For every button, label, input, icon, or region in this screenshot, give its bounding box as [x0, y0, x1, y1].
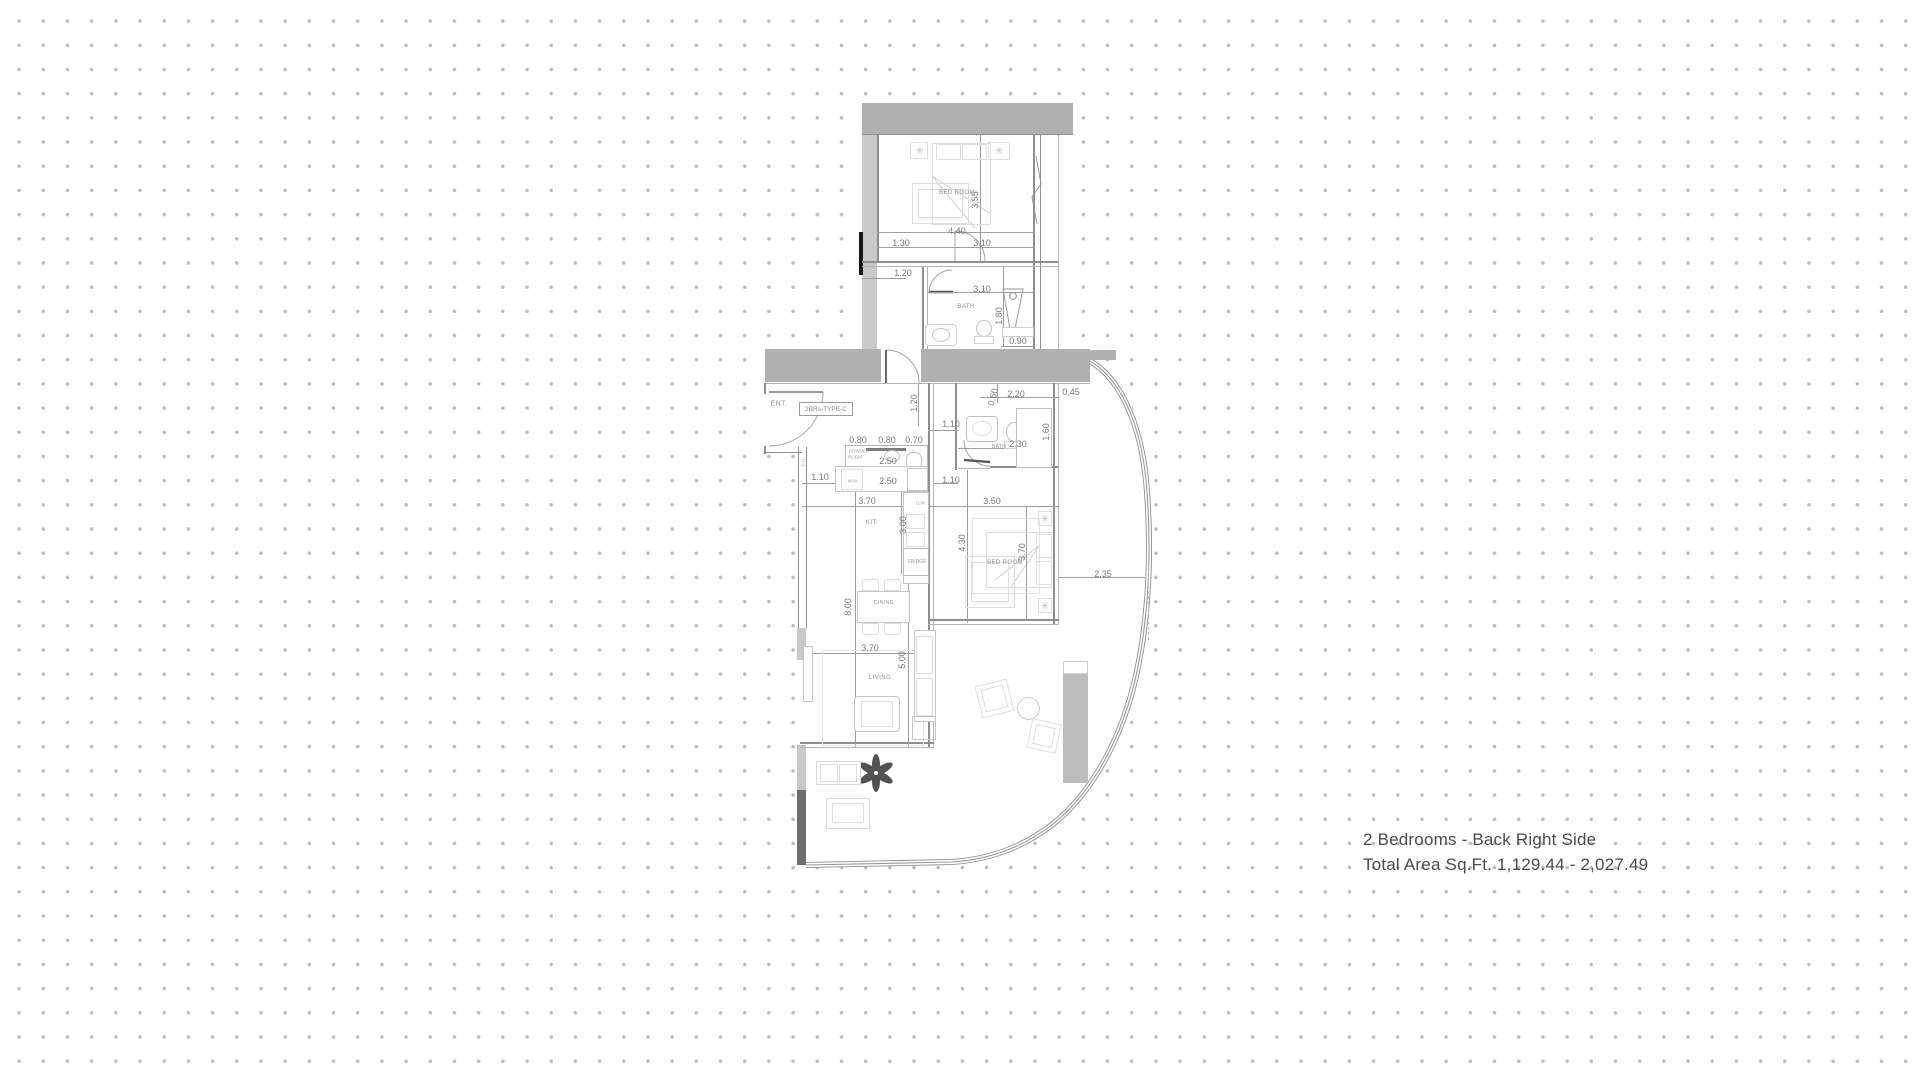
wall-line: [922, 267, 924, 349]
dimension-label: 2.20: [1007, 389, 1025, 399]
dining-table: [857, 591, 910, 623]
wall-line: [764, 452, 802, 453]
pillow: [1036, 534, 1052, 558]
fixture-label: FRIDGE: [908, 559, 927, 565]
dimension-label: 5.00: [897, 651, 907, 669]
wall-line: [862, 134, 1073, 135]
room-label: BATH: [957, 304, 974, 310]
wall-line: [1058, 135, 1059, 349]
room-label: DINING: [874, 600, 894, 606]
sofa-cushion: [916, 636, 933, 674]
caption-area: Total Area Sq.Ft. 1,129.44 - 2,027.49: [1363, 852, 1648, 877]
wall-line: [798, 447, 799, 628]
wall-line: [862, 266, 1058, 267]
room-label: ENT.: [771, 401, 788, 408]
wall-line: [1040, 135, 1041, 349]
room-label: BED ROOM: [987, 560, 1023, 566]
dim-extension-line: [1148, 555, 1150, 640]
dimension-label: 2.35: [1094, 569, 1112, 579]
fixture-label: C.U.: [801, 458, 806, 467]
dimension-label: 1.30: [892, 238, 910, 248]
pillow: [1036, 561, 1052, 585]
wall-mid-band-tail: [1090, 350, 1116, 360]
dimension-label: 2.30: [1009, 439, 1027, 449]
toilet-bowl: [976, 320, 992, 337]
tv-unit: [803, 646, 813, 702]
dim-line: [802, 483, 835, 484]
dimension-label: 1.80: [994, 307, 1004, 325]
dining-chair: [884, 623, 901, 635]
wall-mid-band-left: [765, 349, 881, 382]
dimension-label: 3.00: [898, 516, 908, 534]
wall-line: [877, 135, 879, 261]
caption-title: 2 Bedrooms - Back Right Side: [1363, 827, 1648, 852]
dimension-label: 3.70: [861, 643, 879, 653]
wall-mid-band-right: [921, 349, 1090, 382]
parapet-left-b: [797, 745, 806, 791]
wall-line: [1053, 383, 1055, 625]
dimension-label: 3.70: [858, 496, 876, 506]
dimension-label: 0.80: [849, 435, 867, 445]
wall-line: [958, 468, 990, 469]
kitchen-sink: [906, 514, 925, 529]
wall-line: [764, 383, 766, 394]
dim-line: [1001, 346, 1034, 347]
fixture-label: W.M.: [848, 479, 858, 484]
terrace-loveseat-cushion: [820, 764, 838, 782]
flower-icon: ✳: [1040, 513, 1049, 526]
toilet-tank: [974, 336, 994, 344]
dimension-label: 8.00: [843, 598, 853, 616]
dimension-label: 3.10: [973, 238, 991, 248]
dining-chair: [884, 579, 901, 591]
dimension-label: 1.10: [942, 475, 960, 485]
floor-plan-page: ✳ ✳ ✳ ✳: [0, 0, 1920, 1078]
parapet-left-dark: [797, 790, 806, 865]
unit-type-label: 2BRs-TYPE-C: [799, 402, 853, 416]
dimension-label: 1.60: [1041, 423, 1051, 441]
fixture-label: POWDER: [849, 449, 869, 454]
dimension-label: 0.70: [905, 435, 923, 445]
wall-line: [928, 619, 1059, 621]
wall-line: [800, 747, 934, 748]
dim-line: [862, 278, 906, 279]
terrace-table-inner: [832, 803, 864, 823]
room-label: BATH: [992, 444, 1007, 450]
dimension-label: 3.50: [983, 496, 1001, 506]
kitchen-hob: [907, 468, 928, 491]
dimension-label: 4.40: [948, 226, 966, 236]
room-label: LIVING: [869, 675, 891, 681]
terrace-loveseat-cushion: [839, 764, 857, 782]
dimension-label: 1.10: [811, 472, 829, 482]
dimension-label: 1.10: [942, 419, 960, 429]
side-table: [912, 716, 936, 740]
dimension-label: 0.80: [878, 435, 896, 445]
wall-line: [1033, 135, 1035, 349]
terrace-planter-top: [1063, 661, 1088, 674]
wall-section-marker: [859, 232, 863, 275]
dimension-label: 1.20: [894, 268, 912, 278]
dim-line: [933, 506, 1059, 507]
dining-chair: [862, 579, 879, 591]
dining-chair: [862, 623, 879, 635]
dimension-label: 1.20: [909, 394, 919, 412]
flower-icon: ✳: [994, 145, 1003, 158]
dimension-label: 3.70: [1017, 543, 1027, 561]
room-label: KIT.: [866, 520, 878, 526]
flower-icon: ✳: [915, 145, 924, 158]
dimension-label: 2.50: [879, 476, 897, 486]
wall-upper-left: [862, 135, 877, 349]
dimension-label: 2.50: [879, 456, 897, 466]
dimension-label: 0.90: [1009, 336, 1027, 346]
plan-caption: 2 Bedrooms - Back Right Side Total Area …: [1363, 827, 1648, 877]
terrace-planter: [1063, 674, 1088, 783]
bath2-basin: [972, 421, 992, 436]
sofa-cushion: [916, 678, 933, 716]
dimension-label: 0.45: [1062, 387, 1080, 397]
kitchen-sink: [906, 532, 925, 547]
wall-line: [1058, 383, 1059, 625]
bath-sink-basin: [932, 328, 950, 342]
terrace-chair-inner: [1032, 724, 1056, 748]
wall-line: [928, 624, 1059, 625]
dim-line: [928, 430, 959, 431]
wall-line: [806, 447, 807, 628]
terrace-round-table: [1017, 697, 1040, 720]
dimension-label: 3.10: [973, 284, 991, 294]
dimension-label: 4.30: [957, 534, 967, 552]
fixture-label: D.W.: [916, 501, 926, 506]
fixture-label: ROOM: [848, 455, 862, 460]
wall-top-band: [862, 103, 1073, 135]
room-label: BED ROOM: [939, 190, 975, 196]
flower-icon: ✳: [1040, 600, 1049, 613]
armchair-seat: [861, 701, 893, 727]
wall-line: [862, 261, 1058, 263]
